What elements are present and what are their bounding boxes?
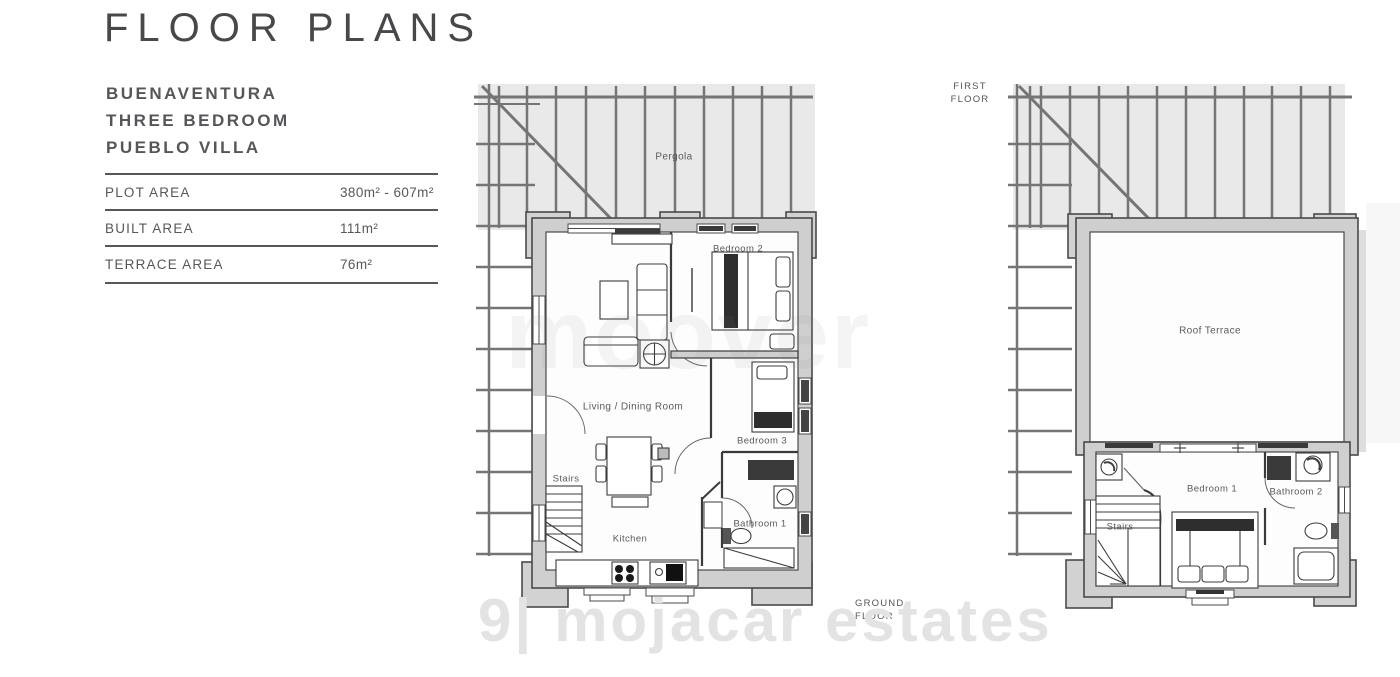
bed-bedroom3 bbox=[752, 362, 794, 432]
label-bathroom1: Bathroom 1 bbox=[733, 519, 786, 530]
spec-row-built-area: BUILT AREA 111m² bbox=[105, 209, 438, 245]
label-bathroom2: Bathroom 2 bbox=[1269, 487, 1322, 498]
label-pergola: Pergola bbox=[655, 152, 692, 163]
label-bedroom1: Bedroom 1 bbox=[1187, 484, 1237, 495]
side-table bbox=[640, 340, 669, 368]
coffee-table bbox=[600, 281, 628, 319]
spec-label: BUILT AREA bbox=[105, 221, 340, 236]
wall-box bbox=[658, 448, 669, 459]
property-subtitle: BUENAVENTURA THREE BEDROOM PUEBLO VILLA bbox=[106, 80, 290, 161]
page-title: FLOOR PLANS bbox=[104, 6, 483, 51]
desk-bedroom3 bbox=[748, 460, 794, 480]
bed-bedroom1 bbox=[1172, 512, 1258, 588]
label-kitchen: Kitchen bbox=[613, 534, 648, 545]
subtitle-line: BUENAVENTURA bbox=[106, 80, 290, 107]
stairs-first bbox=[1096, 496, 1160, 586]
stairs-ground bbox=[546, 486, 582, 552]
spec-row-plot-area: PLOT AREA 380m² - 607m² bbox=[105, 173, 438, 209]
spec-value: 111m² bbox=[340, 221, 378, 236]
label-stairs-first: Stairs bbox=[1107, 522, 1134, 533]
label-bedroom2: Bedroom 2 bbox=[713, 244, 763, 255]
spec-value: 76m² bbox=[340, 257, 372, 272]
ground-floor-title: GROUND FLOOR bbox=[855, 597, 904, 623]
label-roof-terrace: Roof Terrace bbox=[1179, 326, 1241, 337]
wardrobe-bathroom2 bbox=[1267, 456, 1291, 480]
page-shading bbox=[1366, 203, 1400, 443]
sofa bbox=[584, 337, 638, 366]
spec-row-terrace-area: TERRACE AREA 76m² bbox=[105, 245, 438, 284]
first-floor-plan bbox=[1000, 78, 1400, 628]
spec-label: TERRACE AREA bbox=[105, 257, 340, 272]
toilet-bathroom2 bbox=[1305, 523, 1339, 539]
kitchen-counter bbox=[556, 560, 698, 586]
ground-floor-plan bbox=[470, 78, 930, 628]
label-stairs-ground: Stairs bbox=[553, 474, 580, 485]
shower bbox=[1296, 453, 1330, 481]
chair-bedroom2 bbox=[770, 334, 794, 349]
washing-machine bbox=[1096, 454, 1122, 480]
bed-bedroom2 bbox=[712, 252, 793, 330]
subtitle-line: PUEBLO VILLA bbox=[106, 134, 290, 161]
label-living-dining: Living / Dining Room bbox=[583, 402, 683, 413]
spec-value: 380m² - 607m² bbox=[340, 185, 434, 200]
area-spec-table: PLOT AREA 380m² - 607m² BUILT AREA 111m²… bbox=[105, 173, 438, 284]
chaise-sofa bbox=[637, 264, 667, 340]
first-floor-title: FIRST FLOOR bbox=[948, 80, 992, 106]
spec-label: PLOT AREA bbox=[105, 185, 340, 200]
bathtub bbox=[1294, 548, 1338, 584]
subtitle-line: THREE BEDROOM bbox=[106, 107, 290, 134]
tv-unit bbox=[612, 234, 672, 244]
label-bedroom3: Bedroom 3 bbox=[737, 436, 787, 447]
floor-plans-page: FLOOR PLANS BUENAVENTURA THREE BEDROOM P… bbox=[0, 0, 1400, 677]
